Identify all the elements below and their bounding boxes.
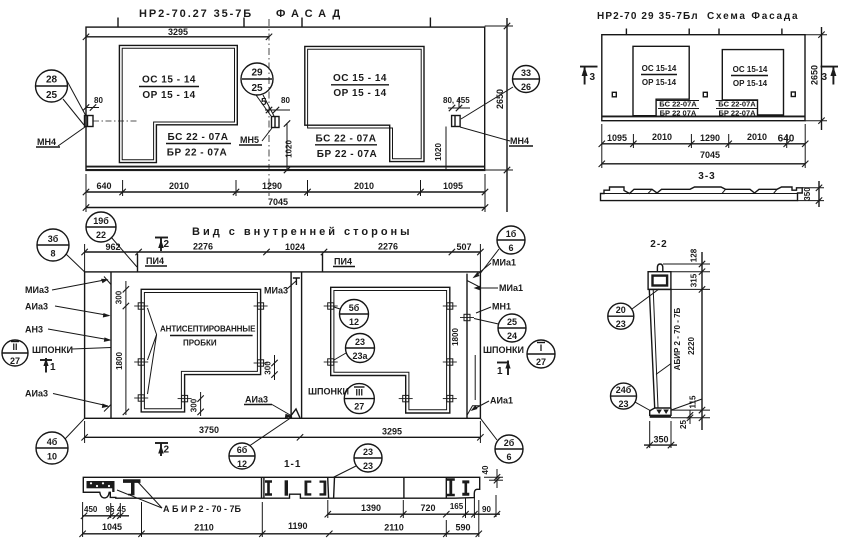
svg-text:165: 165 bbox=[450, 502, 464, 511]
svg-text:3: 3 bbox=[590, 72, 596, 83]
svg-text:2-2: 2-2 bbox=[650, 239, 667, 250]
svg-text:300: 300 bbox=[264, 361, 273, 375]
svg-text:22: 22 bbox=[96, 230, 106, 240]
svg-text:6: 6 bbox=[508, 243, 513, 253]
svg-text:А Б И Р 2 - 70 - 7Б: А Б И Р 2 - 70 - 7Б bbox=[163, 504, 241, 514]
svg-text:2010: 2010 bbox=[747, 132, 767, 142]
svg-text:АН3: АН3 bbox=[25, 325, 43, 335]
svg-text:507: 507 bbox=[456, 242, 471, 252]
svg-text:720: 720 bbox=[420, 503, 435, 513]
svg-text:640: 640 bbox=[778, 134, 795, 145]
svg-text:12: 12 bbox=[349, 317, 359, 327]
svg-text:1800: 1800 bbox=[115, 352, 124, 370]
svg-text:962: 962 bbox=[105, 242, 120, 252]
svg-text:25: 25 bbox=[507, 317, 517, 327]
svg-text:ОР 15-14: ОР 15-14 bbox=[642, 78, 677, 87]
svg-text:300: 300 bbox=[190, 398, 199, 412]
svg-text:МИа1: МИа1 bbox=[492, 258, 516, 268]
svg-text:25: 25 bbox=[46, 90, 58, 101]
svg-text:2276: 2276 bbox=[378, 242, 398, 252]
svg-text:ОС 15 - 14: ОС 15 - 14 bbox=[142, 75, 196, 86]
svg-text:3295: 3295 bbox=[382, 427, 402, 437]
svg-text:23: 23 bbox=[618, 399, 628, 409]
svg-text:БС 22 - 07А: БС 22 - 07А bbox=[316, 134, 377, 145]
svg-text:350: 350 bbox=[653, 435, 668, 445]
svg-text:24б: 24б bbox=[616, 385, 632, 395]
svg-text:3: 3 bbox=[822, 72, 828, 83]
svg-text:МИа3: МИа3 bbox=[25, 285, 49, 295]
svg-text:БР 22 07А: БР 22 07А bbox=[660, 109, 697, 118]
svg-text:АИа3: АИа3 bbox=[245, 395, 268, 405]
svg-text:МН4: МН4 bbox=[37, 137, 56, 147]
svg-text:1095: 1095 bbox=[443, 181, 463, 191]
svg-text:3750: 3750 bbox=[199, 425, 219, 435]
svg-text:23: 23 bbox=[363, 447, 373, 457]
svg-text:128: 128 bbox=[690, 248, 699, 262]
svg-text:29: 29 bbox=[251, 68, 263, 79]
svg-text:7045: 7045 bbox=[268, 197, 288, 207]
svg-text:23: 23 bbox=[616, 319, 626, 329]
svg-text:1: 1 bbox=[50, 362, 56, 373]
svg-text:23: 23 bbox=[363, 461, 373, 471]
svg-text:1б: 1б bbox=[506, 229, 517, 239]
svg-text:26: 26 bbox=[521, 82, 531, 92]
svg-text:ШПОНКИ: ШПОНКИ bbox=[308, 387, 349, 397]
svg-text:350: 350 bbox=[803, 187, 812, 201]
svg-text:10: 10 bbox=[47, 452, 57, 462]
svg-text:АИа1: АИа1 bbox=[490, 396, 513, 406]
svg-text:2276: 2276 bbox=[193, 242, 213, 252]
svg-text:1020: 1020 bbox=[285, 140, 294, 158]
svg-text:2010: 2010 bbox=[354, 181, 374, 191]
svg-text:ОС 15 - 14: ОС 15 - 14 bbox=[333, 73, 387, 84]
svg-text:АИа3: АИа3 bbox=[25, 389, 48, 399]
svg-text:2110: 2110 bbox=[384, 523, 404, 533]
svg-text:590: 590 bbox=[455, 523, 470, 533]
svg-text:6б: 6б bbox=[237, 445, 248, 455]
svg-text:6: 6 bbox=[506, 452, 511, 462]
svg-text:2110: 2110 bbox=[194, 523, 214, 533]
svg-text:115: 115 bbox=[689, 395, 698, 408]
svg-text:АНТИСЕПТИРОВАННЫЕ: АНТИСЕПТИРОВАННЫЕ bbox=[160, 325, 256, 334]
svg-text:ФАСАД: ФАСАД bbox=[276, 8, 346, 20]
svg-text:МН1: МН1 bbox=[492, 302, 511, 312]
svg-text:4б: 4б bbox=[47, 437, 58, 447]
svg-text:12: 12 bbox=[237, 459, 247, 469]
svg-text:1290: 1290 bbox=[700, 133, 720, 143]
svg-text:25: 25 bbox=[679, 420, 688, 429]
svg-text:2б: 2б bbox=[504, 438, 515, 448]
svg-text:5б: 5б bbox=[349, 303, 360, 313]
svg-text:АИа3: АИа3 bbox=[25, 302, 48, 312]
svg-text:БР 22-07А: БР 22-07А bbox=[718, 109, 756, 118]
svg-text:1: 1 bbox=[497, 366, 503, 377]
svg-text:III: III bbox=[356, 388, 364, 398]
svg-text:ОС 15-14: ОС 15-14 bbox=[733, 65, 768, 74]
svg-text:23: 23 bbox=[355, 337, 365, 347]
svg-text:20: 20 bbox=[616, 305, 626, 315]
svg-text:24: 24 bbox=[507, 331, 517, 341]
svg-text:33: 33 bbox=[521, 68, 531, 78]
svg-text:1045: 1045 bbox=[102, 522, 122, 532]
svg-text:3-3: 3-3 bbox=[698, 171, 715, 182]
svg-text:27: 27 bbox=[354, 402, 364, 412]
svg-text:БС 22 - 07А: БС 22 - 07А bbox=[168, 132, 229, 143]
svg-text:640: 640 bbox=[96, 181, 111, 191]
svg-text:450: 450 bbox=[84, 505, 98, 514]
svg-text:19б: 19б bbox=[93, 216, 109, 226]
svg-text:2220: 2220 bbox=[687, 337, 696, 355]
svg-text:ОС 15-14: ОС 15-14 bbox=[642, 64, 677, 73]
svg-text:2650: 2650 bbox=[495, 89, 505, 109]
svg-text:2650: 2650 bbox=[810, 65, 820, 85]
svg-text:МН4: МН4 bbox=[510, 136, 529, 146]
svg-text:ШПОНКИ: ШПОНКИ bbox=[32, 345, 73, 355]
svg-text:Вид с внутренней стороны: Вид с внутренней стороны bbox=[192, 226, 413, 238]
svg-text:1290: 1290 bbox=[262, 181, 282, 191]
svg-text:25: 25 bbox=[251, 83, 263, 94]
svg-text:БР 22 - 07А: БР 22 - 07А bbox=[317, 149, 378, 160]
svg-text:МИа1: МИа1 bbox=[499, 283, 523, 293]
svg-text:МН5: МН5 bbox=[240, 135, 259, 145]
svg-text:НР2-70.27 35-7Б: НР2-70.27 35-7Б bbox=[139, 8, 253, 20]
svg-text:1024: 1024 bbox=[285, 242, 305, 252]
svg-text:3295: 3295 bbox=[168, 27, 188, 37]
svg-text:1190: 1190 bbox=[288, 521, 308, 531]
svg-text:8: 8 bbox=[50, 249, 55, 259]
svg-text:80: 80 bbox=[94, 96, 103, 105]
svg-text:1390: 1390 bbox=[361, 503, 381, 513]
svg-text:2010: 2010 bbox=[652, 132, 672, 142]
svg-text:1020: 1020 bbox=[434, 143, 443, 161]
svg-text:II: II bbox=[12, 342, 17, 352]
svg-text:БР 22 - 07А: БР 22 - 07А bbox=[167, 148, 228, 159]
svg-text:315: 315 bbox=[690, 273, 699, 287]
svg-text:ОР 15 - 14: ОР 15 - 14 bbox=[333, 88, 386, 99]
svg-text:2: 2 bbox=[164, 445, 170, 456]
svg-text:23а: 23а bbox=[352, 351, 368, 361]
svg-text:28: 28 bbox=[46, 75, 58, 86]
svg-text:1800: 1800 bbox=[451, 328, 460, 346]
svg-text:2010: 2010 bbox=[169, 181, 189, 191]
svg-text:ОР 15 - 14: ОР 15 - 14 bbox=[142, 90, 195, 101]
svg-text:7045: 7045 bbox=[700, 150, 720, 160]
svg-text:Схема Фасада: Схема Фасада bbox=[707, 11, 799, 22]
svg-text:300: 300 bbox=[115, 290, 124, 304]
svg-text:НР2-70 29 35-7Бл: НР2-70 29 35-7Бл bbox=[597, 11, 699, 22]
svg-text:МИа3: МИа3 bbox=[264, 286, 288, 296]
svg-text:I: I bbox=[540, 343, 543, 353]
svg-text:ОР 15-14: ОР 15-14 bbox=[733, 79, 768, 88]
svg-text:80, 455: 80, 455 bbox=[443, 96, 470, 105]
svg-text:АБИР 2 - 70 - 7Б: АБИР 2 - 70 - 7Б bbox=[673, 307, 682, 370]
svg-text:ПРОБКИ: ПРОБКИ bbox=[183, 339, 217, 348]
svg-text:80: 80 bbox=[281, 96, 290, 105]
svg-text:1-1: 1-1 bbox=[284, 459, 301, 470]
svg-text:ПИ4: ПИ4 bbox=[334, 257, 352, 267]
svg-text:27: 27 bbox=[536, 357, 546, 367]
svg-text:27: 27 bbox=[10, 356, 20, 366]
svg-text:40: 40 bbox=[481, 465, 490, 474]
svg-text:2: 2 bbox=[164, 239, 170, 250]
svg-text:1095: 1095 bbox=[607, 133, 627, 143]
svg-text:90: 90 bbox=[482, 505, 491, 514]
svg-text:ПИ4: ПИ4 bbox=[146, 256, 164, 266]
svg-text:ШПОНКИ: ШПОНКИ bbox=[483, 345, 524, 355]
svg-text:3б: 3б bbox=[48, 234, 59, 244]
